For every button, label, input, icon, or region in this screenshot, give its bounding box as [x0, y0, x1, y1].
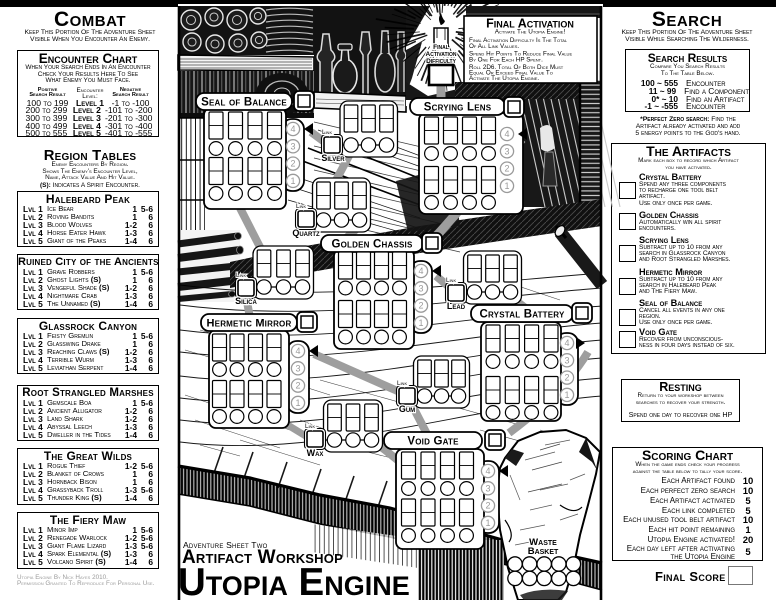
svg-text:1: 1: [504, 181, 509, 191]
svg-text:1: 1: [485, 518, 490, 528]
svg-text:2: 2: [295, 381, 300, 391]
svg-text:3: 3: [564, 355, 569, 365]
svg-text:2: 2: [504, 164, 509, 174]
svg-text:Quartz: Quartz: [292, 228, 320, 238]
svg-text:Of All Link Values.: Of All Link Values.: [469, 43, 519, 50]
svg-text:3: 3: [290, 141, 295, 151]
svg-text:Activation: Activation: [426, 51, 457, 58]
svg-text:Final: Final: [433, 44, 449, 51]
svg-text:Void Gate: Void Gate: [407, 436, 459, 448]
svg-text:1: 1: [290, 176, 295, 186]
svg-text:4: 4: [295, 346, 300, 356]
svg-text:4: 4: [290, 124, 295, 134]
svg-text:2: 2: [564, 373, 569, 383]
svg-text:4: 4: [418, 266, 423, 276]
svg-text:2: 2: [418, 301, 423, 311]
svg-text:Link: Link: [397, 380, 407, 387]
svg-text:Link: Link: [446, 277, 456, 284]
svg-text:By One For Each HP Spent.: By One For Each HP Spent.: [469, 57, 543, 64]
svg-text:Wax: Wax: [307, 448, 324, 458]
svg-text:Silica: Silica: [235, 296, 257, 306]
svg-text:Gum: Gum: [399, 404, 415, 414]
svg-text:2: 2: [485, 501, 490, 511]
svg-text:4: 4: [504, 129, 509, 139]
svg-text:1: 1: [295, 398, 300, 408]
svg-text:Crystal Battery: Crystal Battery: [479, 309, 564, 321]
svg-text:Activate The Utopia Engine!: Activate The Utopia Engine!: [495, 29, 566, 36]
svg-text:Link: Link: [305, 423, 315, 430]
svg-text:3: 3: [418, 283, 423, 293]
svg-text:Golden Chassis: Golden Chassis: [331, 239, 412, 251]
svg-text:Utopia Engine: Utopia Engine: [178, 561, 410, 600]
svg-text:3: 3: [295, 363, 300, 373]
svg-text:Scrying Lens: Scrying Lens: [424, 102, 492, 114]
svg-text:Activate The Utopia Engine.: Activate The Utopia Engine.: [469, 75, 539, 82]
svg-text:Link: Link: [296, 203, 306, 210]
svg-text:Link: Link: [322, 129, 332, 136]
svg-text:Basket: Basket: [528, 546, 559, 557]
svg-text:Lead: Lead: [447, 301, 466, 311]
svg-text:4: 4: [564, 338, 569, 348]
svg-text:3: 3: [485, 483, 490, 493]
svg-text:Silver: Silver: [321, 153, 345, 163]
svg-text:1: 1: [418, 318, 423, 328]
svg-text:4: 4: [485, 466, 490, 476]
svg-text:1: 1: [564, 390, 569, 400]
svg-text:3: 3: [504, 146, 509, 156]
svg-text:Hermetic Mirror: Hermetic Mirror: [207, 318, 292, 330]
svg-text:Link: Link: [236, 272, 246, 279]
svg-text:Seal of Balance: Seal of Balance: [201, 97, 287, 109]
svg-text:2: 2: [290, 159, 295, 169]
